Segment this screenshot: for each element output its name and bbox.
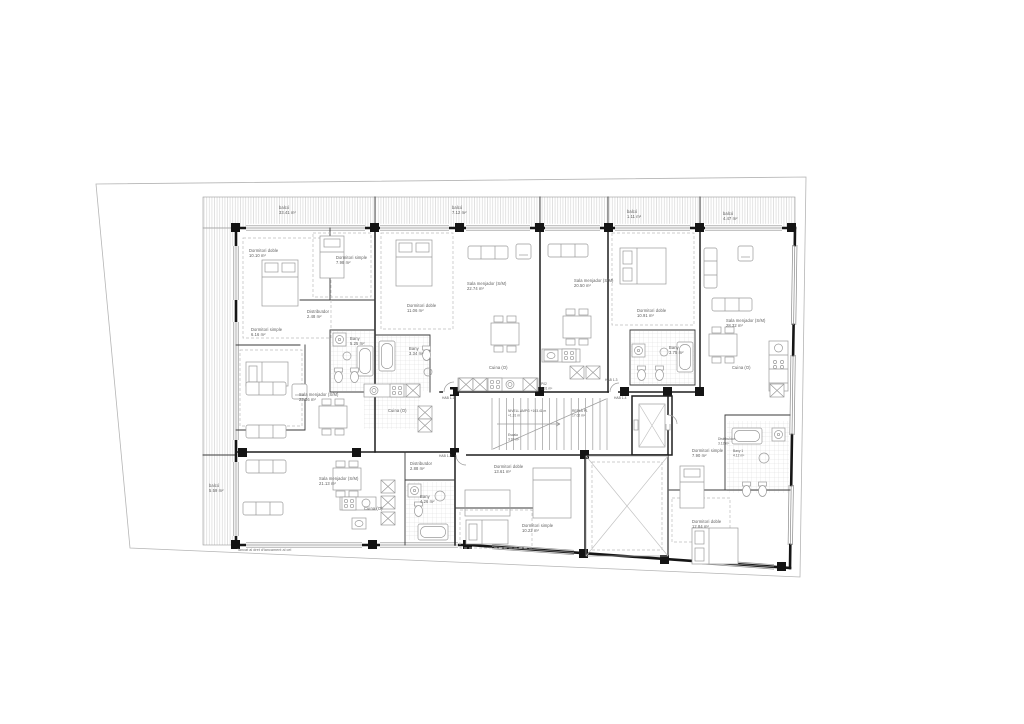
label-level-line2: +1.31 m bbox=[508, 414, 520, 418]
label-unit-hab11: HAB 1-1 bbox=[442, 396, 455, 400]
label-sala-menjador-4-area: 23.36 m² bbox=[299, 397, 316, 402]
courtyard bbox=[586, 456, 668, 556]
label-dormitori-doble-2-area: 11.06 m² bbox=[407, 308, 424, 313]
label-balco-1-area: 33.41 m² bbox=[279, 210, 296, 215]
label-bottom-note: Tancat al dret d'tancament al cel bbox=[237, 548, 291, 552]
label-dormitori-simple-2-area: 6.16 m² bbox=[251, 332, 266, 337]
label-balco-2-area: 7.12 m² bbox=[452, 210, 467, 215]
label-sala-menjador-3-area: 28.32 m² bbox=[726, 323, 743, 328]
label-dormitori-simple-3-area: 10.22 m² bbox=[522, 528, 539, 533]
label-balco-3-area: 1.11 m² bbox=[627, 214, 642, 219]
label-cuina-3: Cuina (O) bbox=[388, 408, 407, 413]
label-bany-1-area: 5.25 m² bbox=[350, 341, 365, 346]
label-sala-menjador-2-area: 20.50 m² bbox=[574, 283, 591, 288]
label-dormitori-doble-1-area: 10.10 m² bbox=[249, 253, 266, 258]
label-unit-hab14: HAB 1-4 bbox=[614, 396, 627, 400]
label-door-p02-area: 1.31 m² bbox=[541, 387, 553, 391]
elevator bbox=[632, 396, 672, 455]
label-dormitori-simple-4-area: 7.90 m² bbox=[692, 453, 707, 458]
floor-plan-drawing: balcó 33.41 m² balcó 7.12 m² balcó 1.11 … bbox=[0, 0, 1024, 724]
label-cuina-4: Cuina (O) bbox=[364, 506, 383, 511]
label-stair: Escala bbox=[508, 433, 518, 437]
label-unit-hab13: HAB 1-3 bbox=[605, 378, 618, 382]
label-stair-area: 3.97 m² bbox=[508, 438, 520, 442]
label-dormitori-simple-1-area: 7.98 m² bbox=[336, 260, 351, 265]
label-sala-menjador-5-area: 21.13 m² bbox=[319, 481, 336, 486]
label-unit-hab12: HAB 1-2 bbox=[439, 454, 452, 458]
label-dormitori-doble-5-area: 12.84 m² bbox=[692, 524, 709, 529]
floor-plan-page: balcó 33.41 m² balcó 7.12 m² balcó 1.11 … bbox=[0, 0, 1024, 724]
label-distribuidor-3-area: 3.12 m² bbox=[718, 441, 730, 445]
label-bany-5: Bany 1 bbox=[733, 449, 743, 453]
label-cuina-1: Cuina (O) bbox=[489, 365, 508, 370]
label-dormitori-doble-4-area: 13.61 m² bbox=[494, 469, 511, 474]
label-bany-5-area: 4.12 m² bbox=[733, 453, 745, 457]
furniture bbox=[243, 236, 788, 564]
label-distribuidor-1-area: 2.48 m² bbox=[307, 314, 322, 319]
label-sala-menjador-1-area: 22.74 m² bbox=[467, 286, 484, 291]
label-bany-3-area: 3.75 m² bbox=[669, 350, 684, 355]
label-dormitori-doble-3-area: 10.91 m² bbox=[637, 313, 654, 318]
label-level-line1: NIVELL AMPG +103.41 m bbox=[508, 409, 547, 413]
label-balco-4-area: 4.47 m² bbox=[723, 216, 738, 221]
staircase bbox=[492, 398, 607, 450]
label-bany-4-area: 4.26 m² bbox=[420, 499, 435, 504]
label-distribuidor-3: Distribuïdor bbox=[718, 437, 736, 441]
label-landing-area: 17.02 m² bbox=[572, 414, 586, 418]
doors bbox=[443, 382, 677, 465]
label-cuina-2: Cuina (O) bbox=[732, 365, 751, 370]
label-door-p02: P02 bbox=[541, 382, 547, 386]
label-balco-5-area: 5.59 m² bbox=[209, 488, 224, 493]
label-landing: REPLÀ P1 bbox=[572, 409, 588, 413]
label-bany-2-area: 3.34 m² bbox=[409, 351, 424, 356]
label-distribuidor-2-area: 2.88 m² bbox=[410, 466, 425, 471]
